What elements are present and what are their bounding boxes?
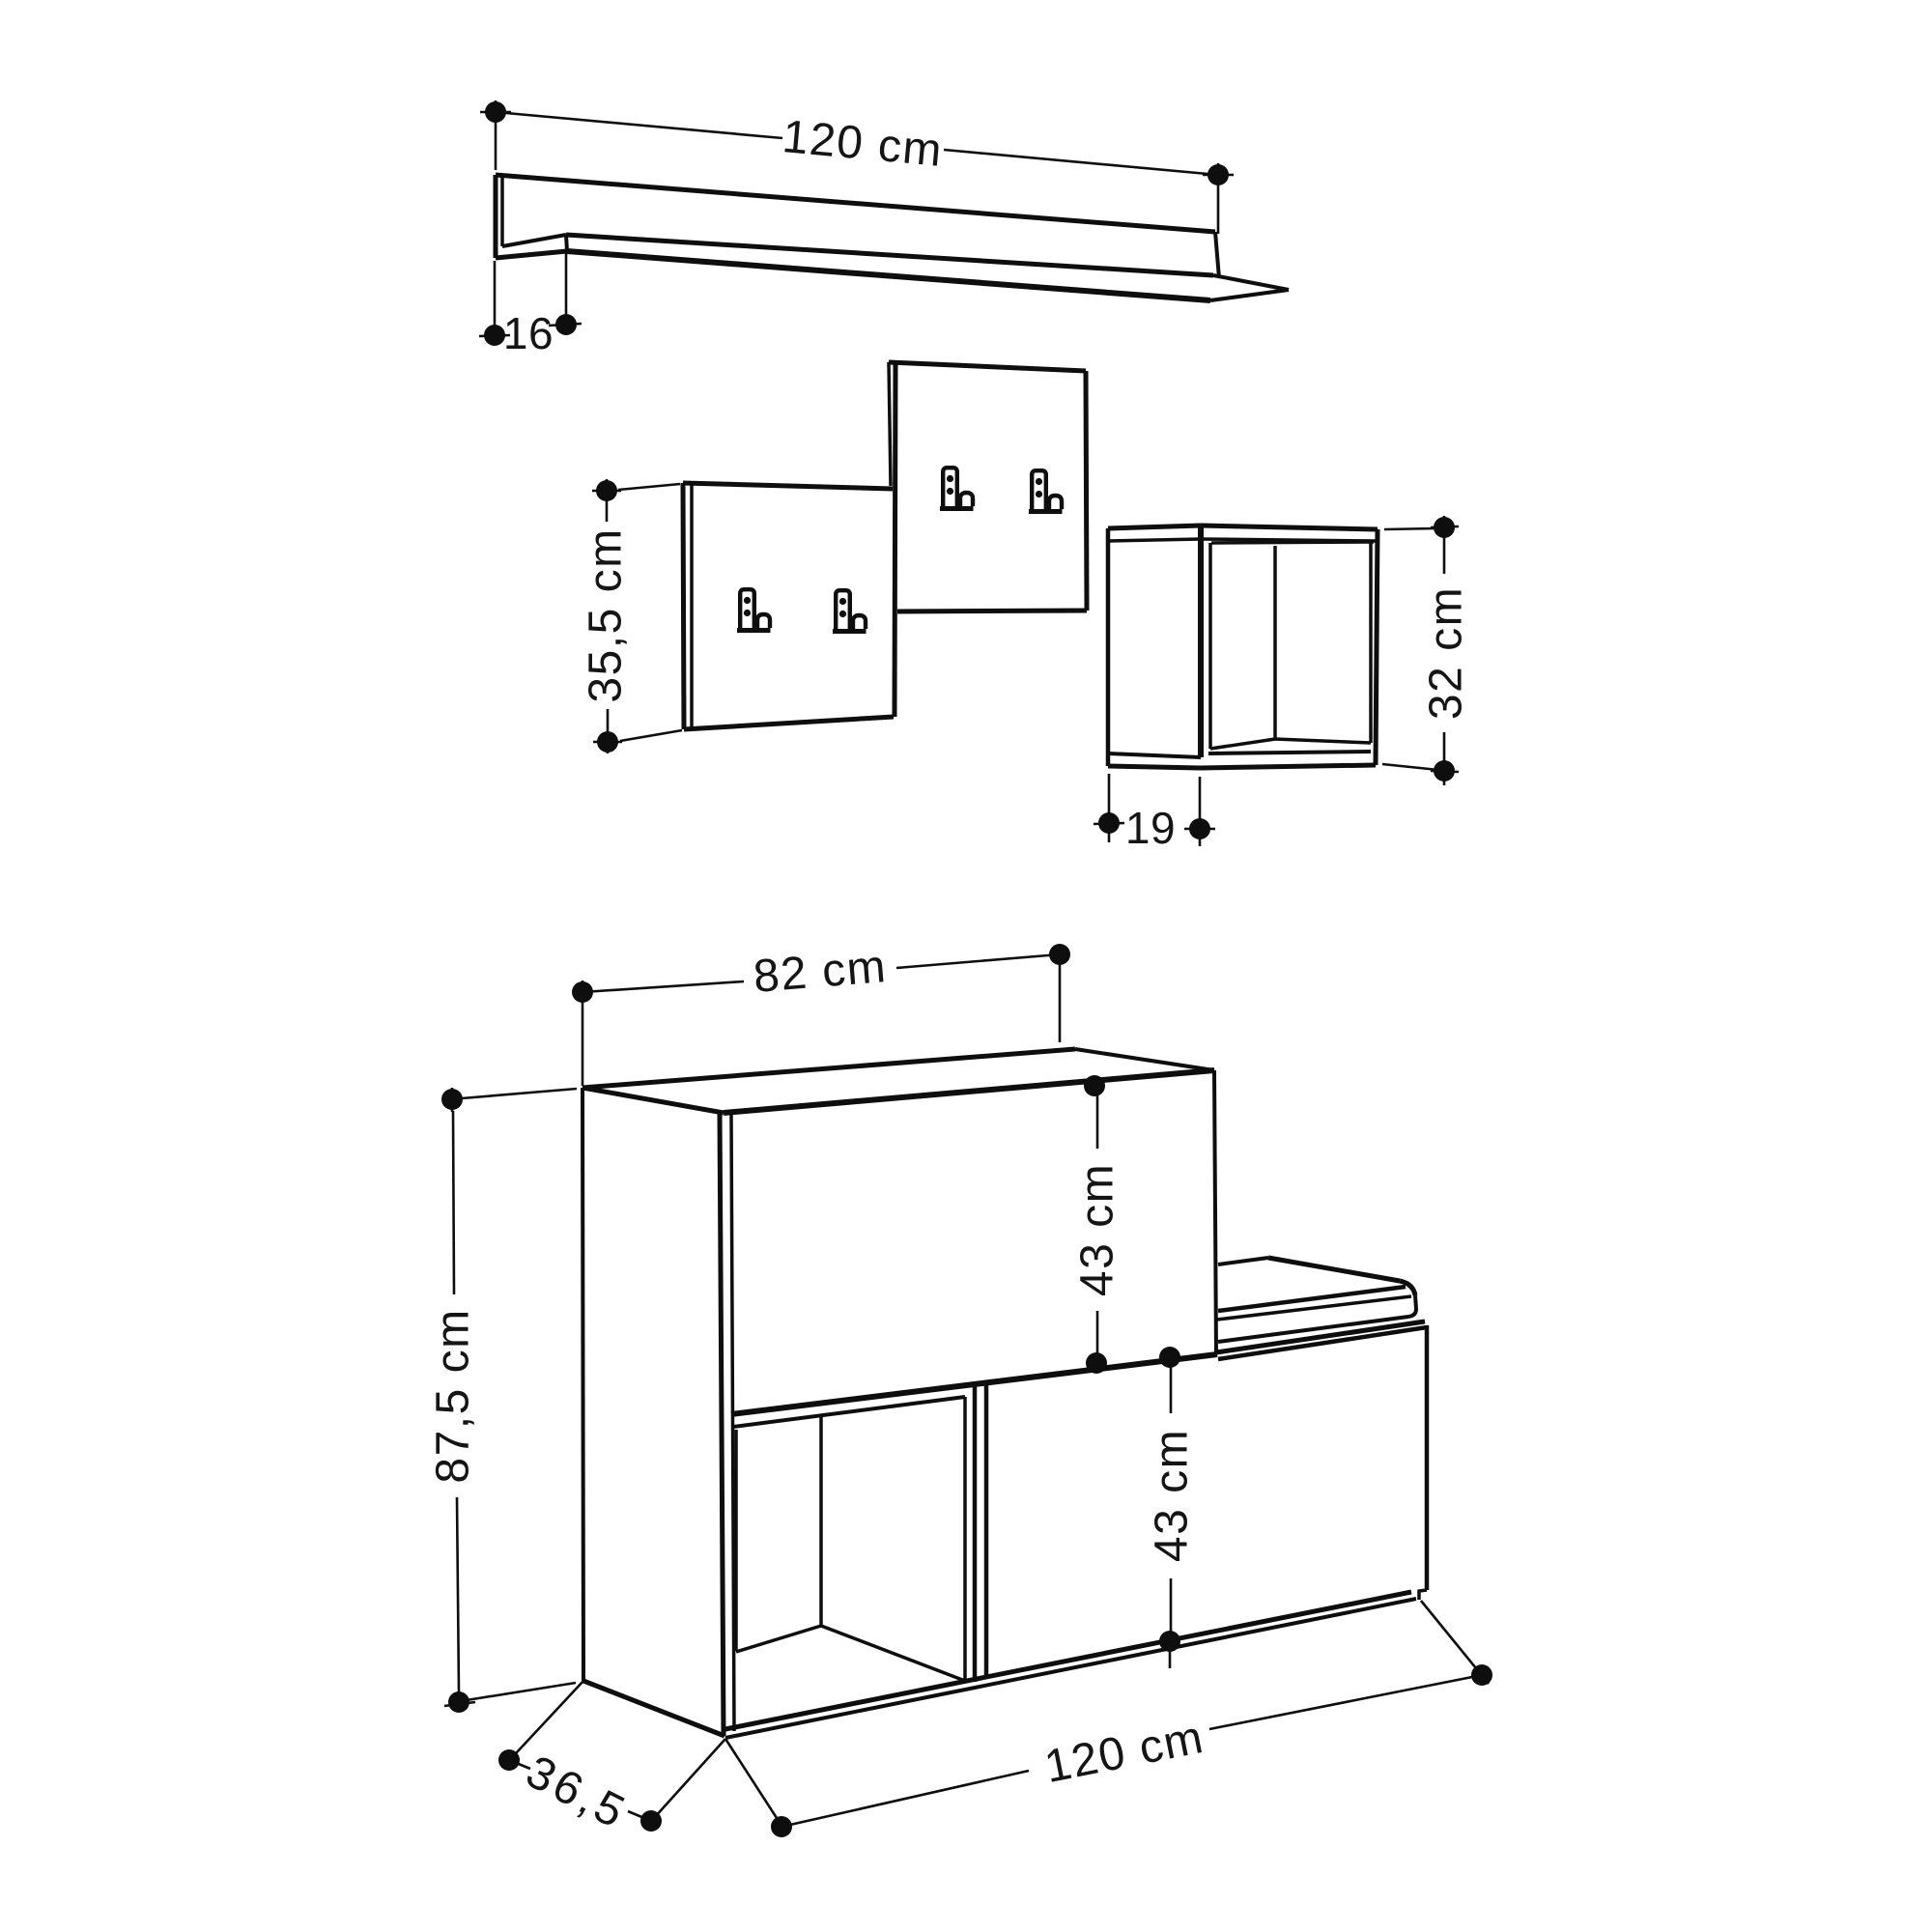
svg-text:43 cm: 43 cm [1072, 1163, 1123, 1296]
svg-text:82 cm: 82 cm [752, 941, 889, 1003]
svg-text:35,5 cm: 35,5 cm [581, 527, 632, 702]
svg-text:32 cm: 32 cm [1421, 586, 1472, 720]
svg-text:16: 16 [503, 308, 554, 358]
svg-text:87,5 cm: 87,5 cm [428, 1308, 479, 1483]
svg-text:43 cm: 43 cm [1147, 1429, 1198, 1562]
svg-text:19: 19 [1125, 803, 1176, 853]
